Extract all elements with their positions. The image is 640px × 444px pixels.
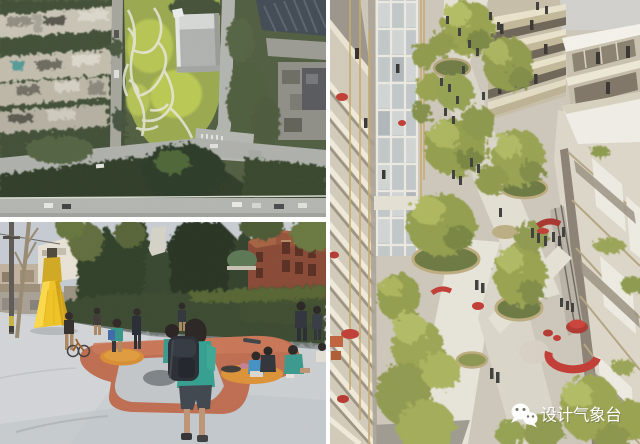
svg-text:设计气象台: 设计气象台 (541, 406, 622, 425)
